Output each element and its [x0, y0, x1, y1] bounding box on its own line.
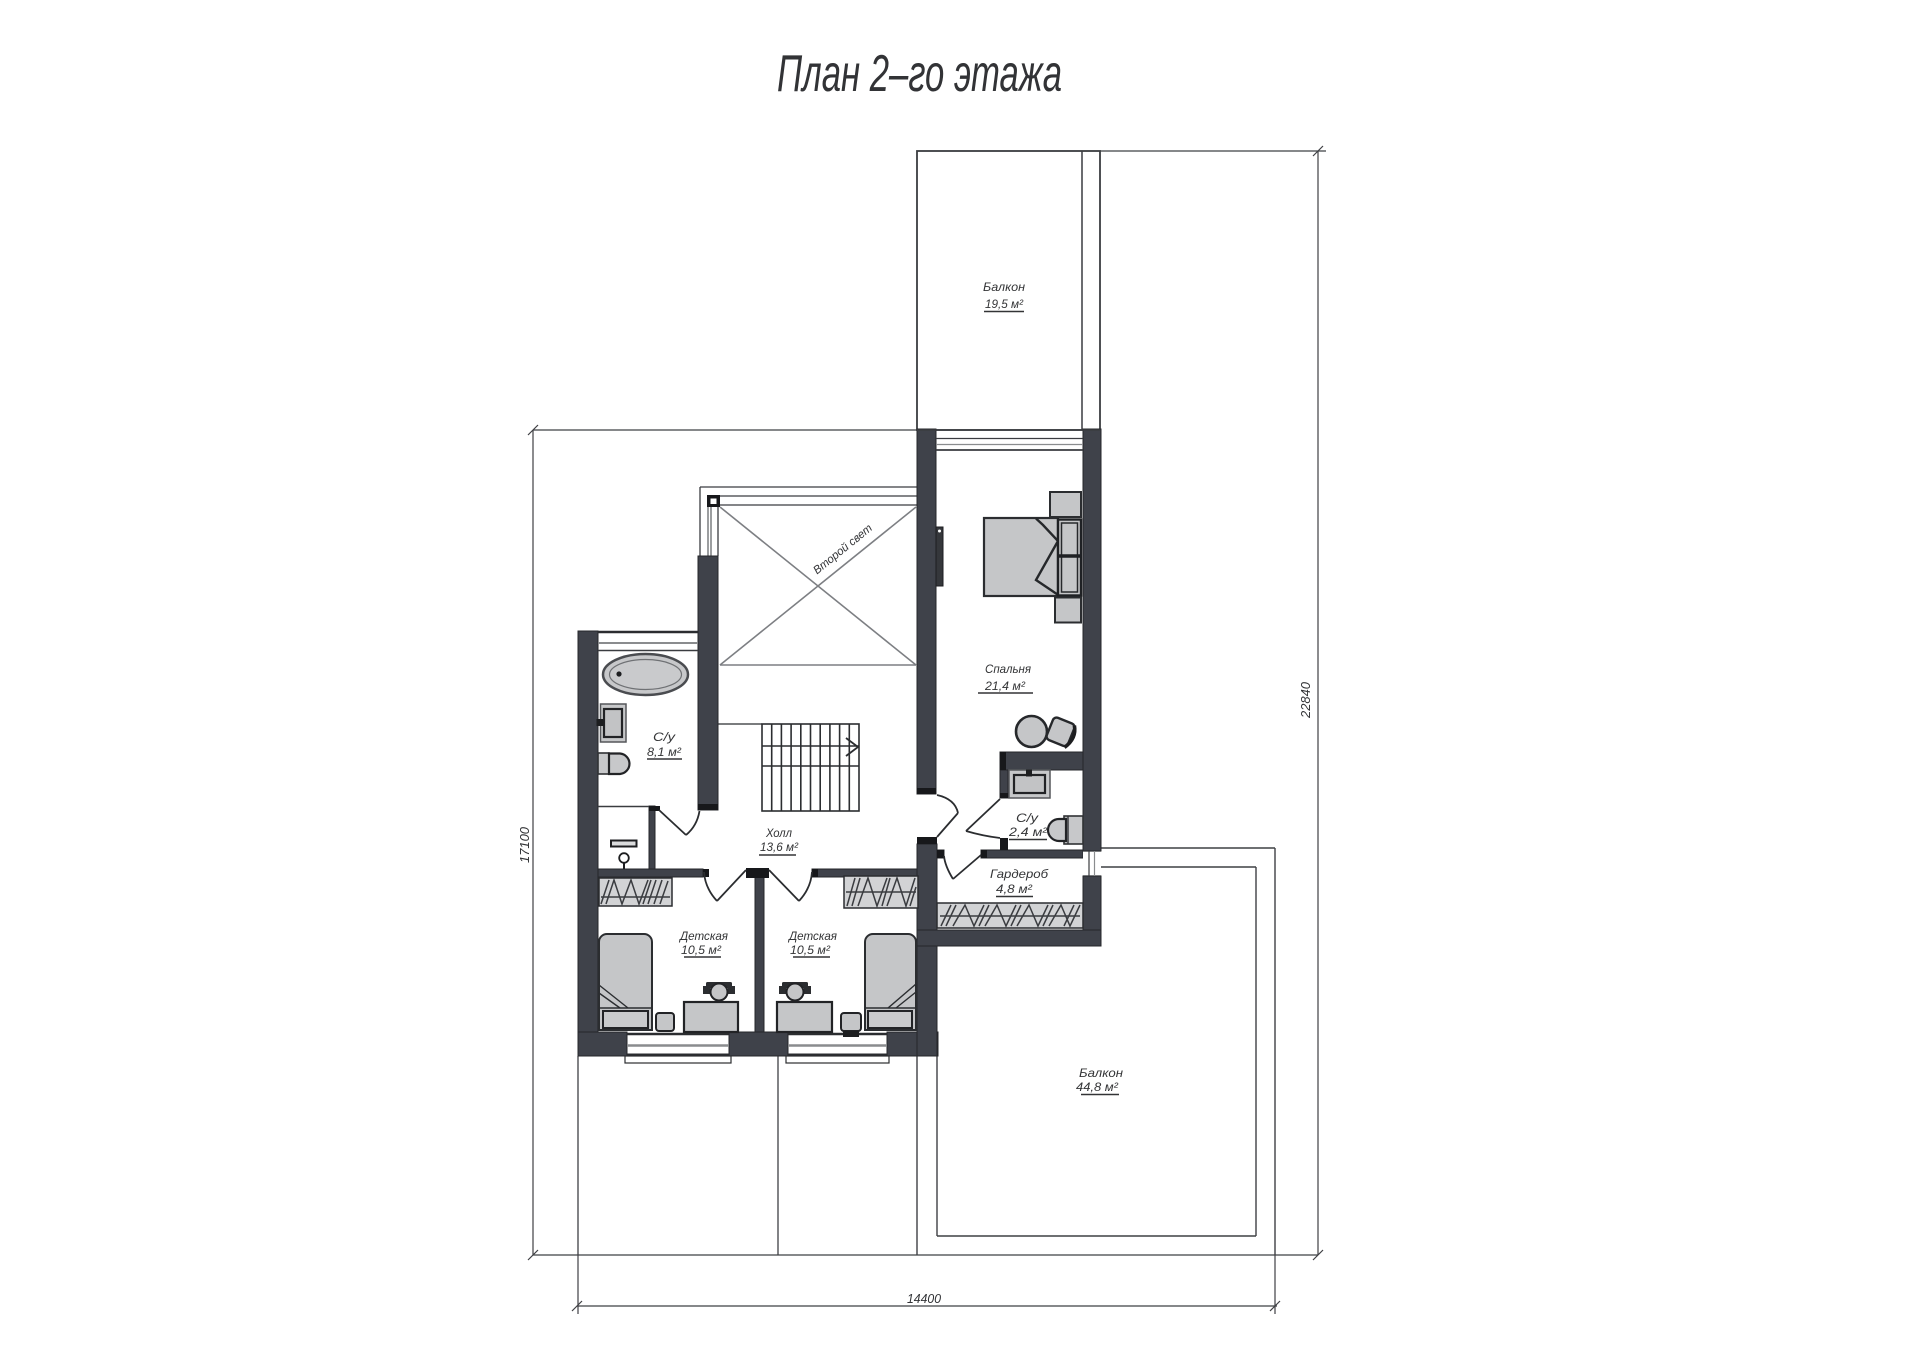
svg-text:С/у: С/у	[653, 730, 676, 744]
svg-text:Холл: Холл	[765, 826, 792, 840]
svg-text:План 2–го этажа: План 2–го этажа	[777, 45, 1062, 103]
svg-text:Гардероб: Гардероб	[990, 867, 1049, 881]
svg-text:Детская: Детская	[678, 929, 728, 943]
svg-text:2,4 м²: 2,4 м²	[1008, 825, 1048, 839]
svg-text:С/у: С/у	[1016, 811, 1039, 825]
svg-text:14400: 14400	[907, 1292, 941, 1306]
svg-text:4,8 м²: 4,8 м²	[996, 882, 1033, 896]
svg-text:17100: 17100	[518, 827, 532, 863]
svg-text:44,8 м²: 44,8 м²	[1076, 1080, 1119, 1094]
svg-text:19,5 м²: 19,5 м²	[985, 297, 1024, 311]
svg-text:8,1 м²: 8,1 м²	[647, 745, 682, 759]
svg-text:Балкон: Балкон	[1079, 1066, 1123, 1080]
svg-text:22840: 22840	[1299, 682, 1313, 719]
svg-text:Детская: Детская	[787, 929, 837, 943]
svg-text:13,6 м²: 13,6 м²	[760, 840, 799, 854]
svg-text:10,5 м²: 10,5 м²	[790, 943, 831, 957]
svg-text:21,4 м²: 21,4 м²	[984, 679, 1026, 693]
svg-text:Спальня: Спальня	[985, 662, 1032, 676]
svg-text:Балкон: Балкон	[983, 280, 1025, 294]
svg-text:10,5 м²: 10,5 м²	[681, 943, 722, 957]
